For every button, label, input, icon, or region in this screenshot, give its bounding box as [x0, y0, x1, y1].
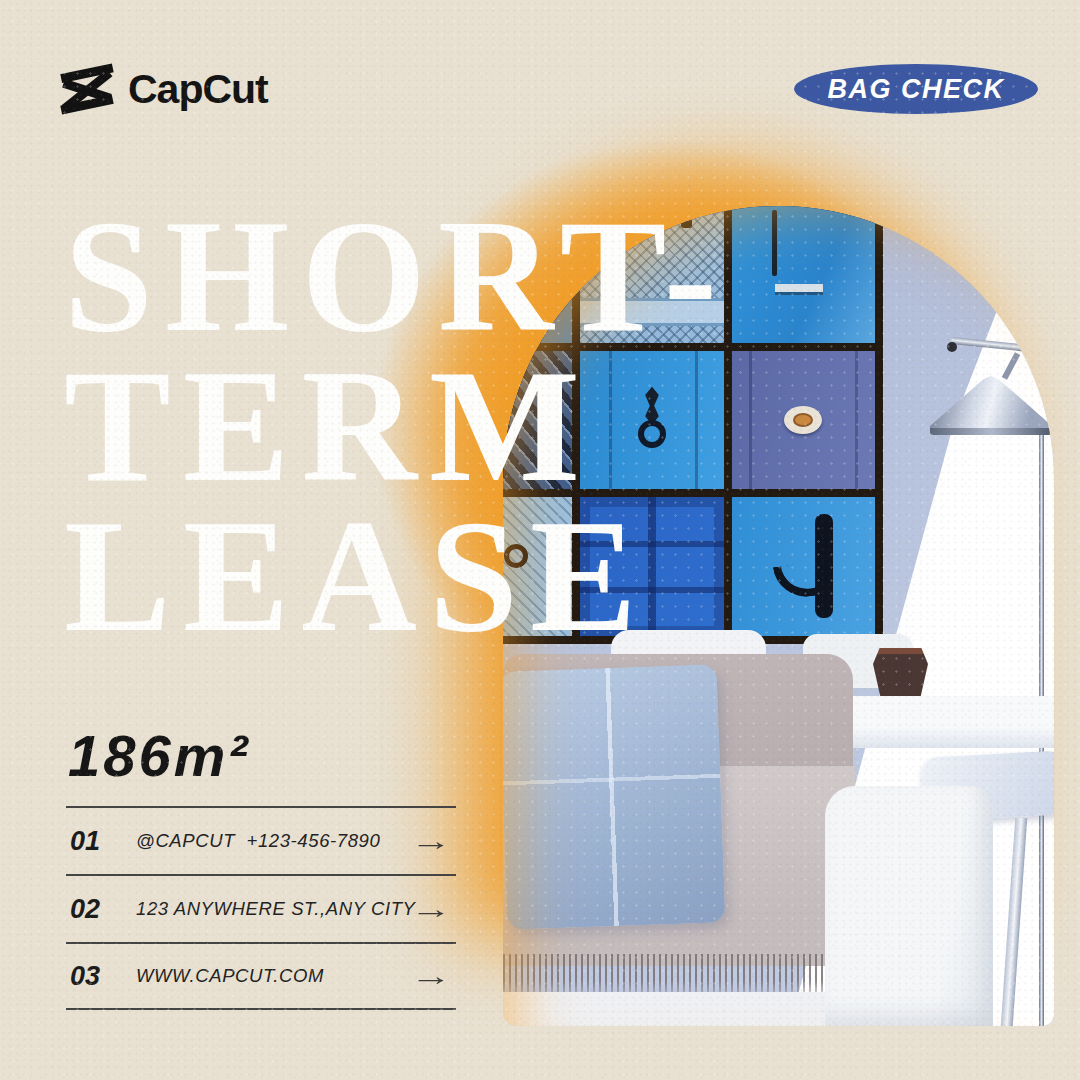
list-index: 02: [70, 894, 136, 925]
arrow-icon: →: [410, 894, 452, 925]
list-item: 01 @CAPCUT +123-456-7890 →: [66, 806, 456, 874]
arrow-icon: →: [410, 826, 452, 857]
list-index: 03: [70, 961, 136, 992]
capcut-logo: CapCut: [60, 62, 268, 116]
contact-list: 01 @CAPCUT +123-456-7890 → 02 123 ANYWHE…: [66, 806, 456, 1010]
list-item: 03 WWW.CAPCUT.COM →: [66, 942, 456, 1010]
list-item: 02 123 ANYWHERE ST.,ANY CITY →: [66, 874, 456, 942]
badge-label: BAG CHECK: [827, 74, 1004, 105]
list-text: WWW.CAPCUT.COM: [136, 965, 324, 987]
bag-check-badge: BAG CHECK: [794, 64, 1038, 114]
capcut-wordmark: CapCut: [128, 66, 268, 113]
poster-canvas: SHORT- TERM LEASE CapCut BAG CHECK 186m²…: [0, 0, 1080, 1080]
list-text: 123 ANYWHERE ST.,ANY CITY: [136, 898, 416, 920]
arrow-icon: →: [410, 961, 452, 992]
list-text: @CAPCUT +123-456-7890: [136, 830, 380, 852]
area-label: 186m²: [68, 722, 251, 789]
headline-line-2: TERM: [64, 346, 592, 506]
capcut-icon: [60, 62, 114, 116]
headline-line-1: SHORT-: [64, 196, 729, 356]
list-index: 01: [70, 826, 136, 857]
headline-line-3: LEASE: [64, 496, 649, 656]
